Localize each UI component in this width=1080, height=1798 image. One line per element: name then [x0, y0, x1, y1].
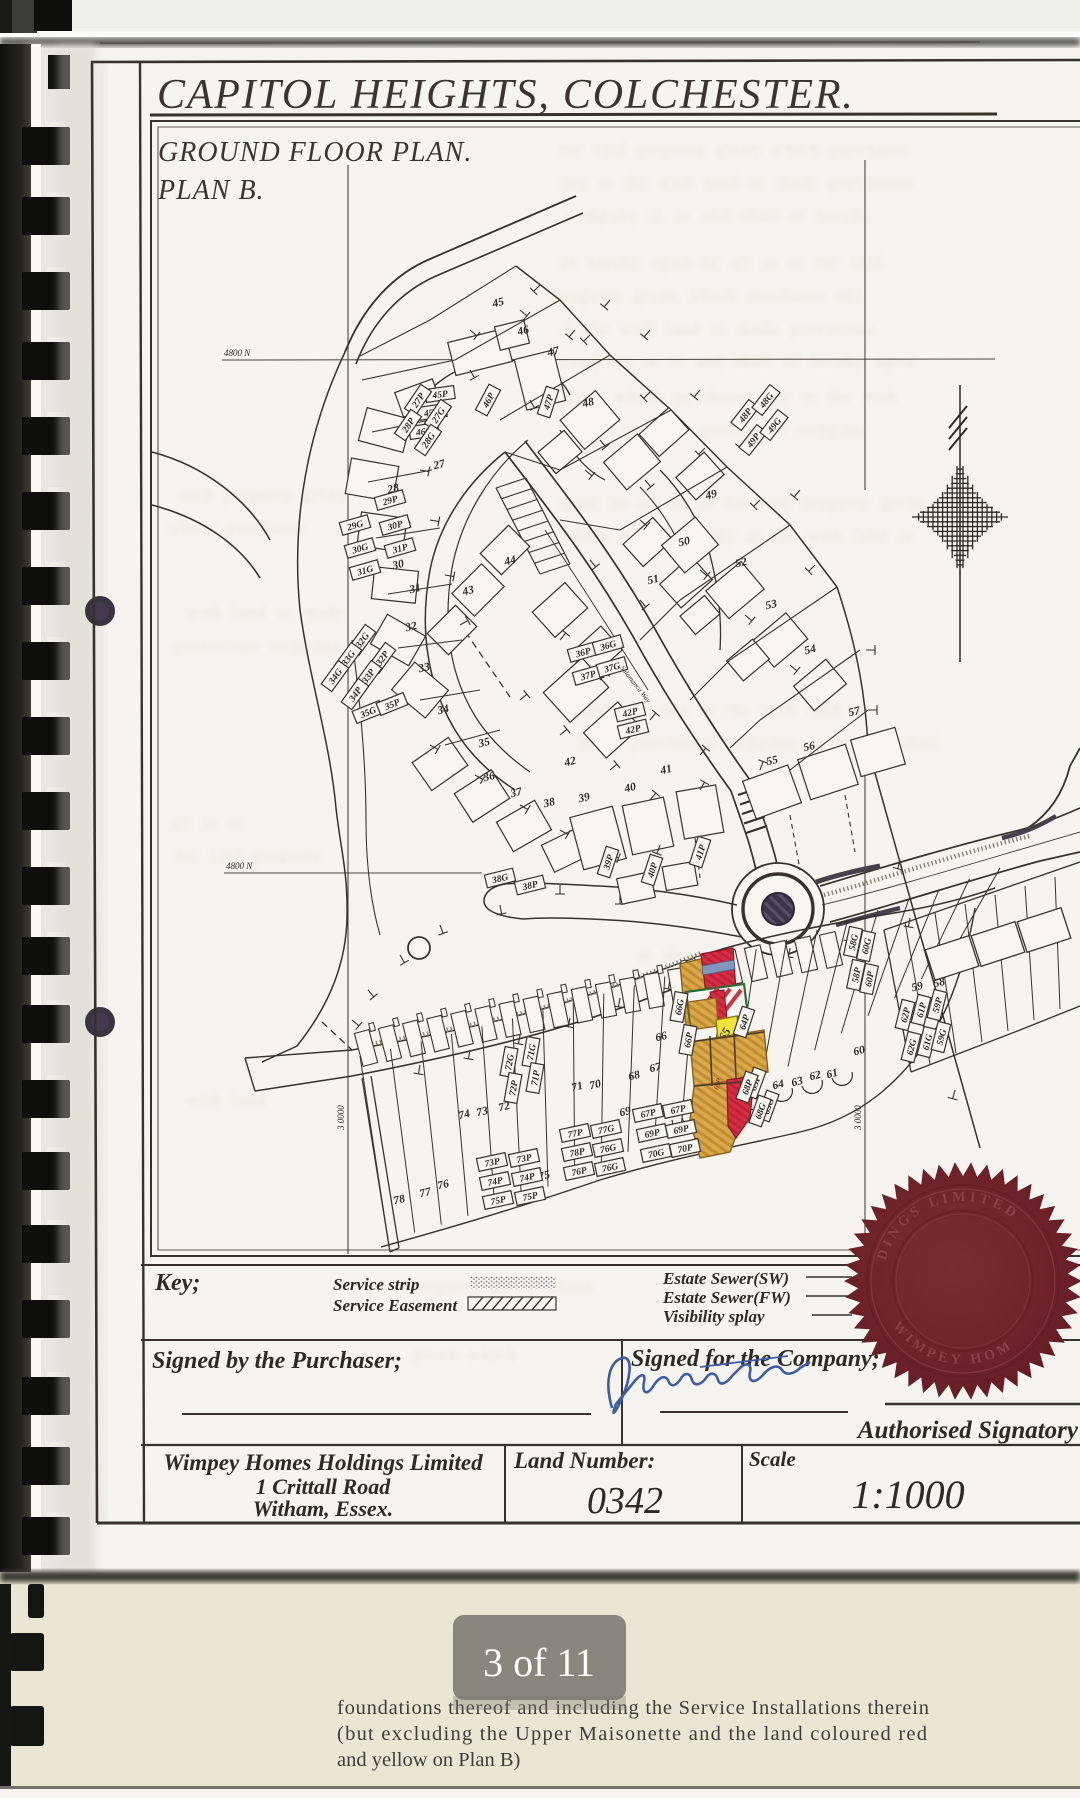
- svg-text:Scale: Scale: [749, 1447, 796, 1471]
- svg-text:all as so: all as so: [170, 813, 246, 832]
- svg-text:CAPITOL HEIGHTS, COLCHESTER.: CAPITOL HEIGHTS, COLCHESTER.: [157, 72, 855, 118]
- svg-text:Authorised Signatory: Authorised Signatory: [856, 1417, 1079, 1444]
- svg-text:PLAN B.: PLAN B.: [157, 175, 265, 206]
- svg-text:4800 N: 4800 N: [226, 861, 253, 871]
- svg-text:any at the with land to made p: any at the with land to made provisions: [560, 173, 914, 192]
- svg-text:Estate Sewer(FW): Estate Sewer(FW): [662, 1288, 791, 1307]
- svg-text:upon be all as so for said pro: upon be all as so for said property give…: [560, 493, 926, 512]
- svg-text:4800 N: 4800 N: [224, 348, 251, 358]
- svg-text:property given which purchaser: property given which purchaser any: [554, 286, 866, 305]
- svg-text:with land: with land: [186, 1090, 267, 1109]
- svg-text:company in or and shall of her: company in or and shall of hereby upon: [560, 352, 916, 371]
- svg-text:given which purchaser any at t: given which purchaser any at the with: [560, 387, 898, 406]
- svg-text:at the with land to made provi: at the with land to made provisions: [560, 319, 875, 338]
- svg-text:3 0000: 3 0000: [336, 1105, 346, 1131]
- svg-text:which purchaser: which purchaser: [168, 518, 306, 537]
- svg-text:foundations thereof and includ: foundations thereof and including the Se…: [337, 1697, 929, 1719]
- svg-text:and yellow on Plan B): and yellow on Plan B): [337, 1749, 520, 1771]
- svg-text:Visibility splay: Visibility splay: [663, 1307, 765, 1326]
- svg-text:1:1000: 1:1000: [851, 1472, 964, 1517]
- svg-text:Land Number:: Land Number:: [513, 1448, 655, 1473]
- svg-text:Estate Sewer(SW): Estate Sewer(SW): [662, 1269, 789, 1288]
- svg-text:given which: given which: [413, 1345, 517, 1364]
- svg-text:(but excluding the Upper Maiso: (but excluding the Upper Maisonette and …: [337, 1723, 927, 1745]
- svg-text:Signed by the Purchaser;: Signed by the Purchaser;: [152, 1348, 402, 1374]
- svg-text:Signed for the Company;: Signed for the Company;: [631, 1346, 880, 1372]
- svg-text:company in or and shall of her: company in or and shall of hereby: [566, 206, 872, 225]
- svg-text:with land to made: with land to made: [186, 603, 346, 622]
- svg-text:for said property given which: for said property given which purchaser: [560, 140, 910, 159]
- svg-text:provisions company: provisions company: [174, 636, 342, 655]
- svg-text:0342: 0342: [587, 1480, 663, 1522]
- svg-text:said property given: said property given: [180, 485, 348, 504]
- svg-text:Key;: Key;: [154, 1270, 200, 1296]
- svg-text:Service Easement: Service Easement: [333, 1296, 458, 1315]
- svg-text:Witham, Essex.: Witham, Essex.: [253, 1496, 393, 1521]
- svg-text:Wimpey Homes Holdings Limited: Wimpey Homes Holdings Limited: [163, 1450, 483, 1475]
- svg-text:3 of 11: 3 of 11: [483, 1640, 595, 1685]
- svg-text:of hereby upon be all as so fo: of hereby upon be all as so for said: [560, 253, 884, 272]
- svg-text:GROUND FLOOR PLAN.: GROUND FLOOR PLAN.: [158, 137, 472, 168]
- svg-text:Service strip: Service strip: [333, 1275, 419, 1294]
